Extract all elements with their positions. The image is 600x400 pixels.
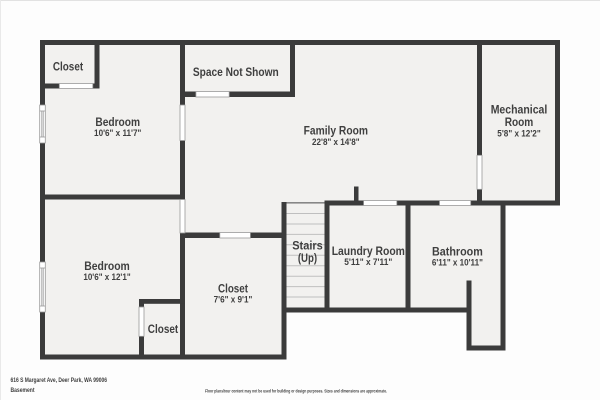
svg-text:(Up): (Up) xyxy=(298,251,317,265)
svg-text:5'11" x 7'11": 5'11" x 7'11" xyxy=(344,257,392,268)
svg-text:7'6" x 9'1": 7'6" x 9'1" xyxy=(214,295,253,306)
svg-text:Floor plans/tour content may n: Floor plans/tour content may not be used… xyxy=(205,388,387,393)
svg-text:Bedroom: Bedroom xyxy=(95,115,140,129)
svg-text:22'8" x 14'8": 22'8" x 14'8" xyxy=(312,137,360,148)
svg-text:Laundry Room: Laundry Room xyxy=(332,244,405,258)
svg-text:5'8" x 12'2": 5'8" x 12'2" xyxy=(497,128,540,139)
svg-text:Space Not Shown: Space Not Shown xyxy=(193,65,279,79)
svg-text:Closet: Closet xyxy=(218,282,248,296)
svg-text:Basement: Basement xyxy=(11,388,35,394)
svg-text:10'6" x 12'1": 10'6" x 12'1" xyxy=(83,272,130,283)
svg-text:Family Room: Family Room xyxy=(304,124,368,138)
svg-text:Closet: Closet xyxy=(53,60,83,74)
svg-text:Bathroom: Bathroom xyxy=(432,244,483,258)
svg-text:Room: Room xyxy=(505,115,534,129)
svg-text:6'11" x 10'11": 6'11" x 10'11" xyxy=(432,257,483,268)
svg-text:Closet: Closet xyxy=(148,322,178,336)
svg-text:10'6" x 11'7": 10'6" x 11'7" xyxy=(94,128,141,139)
svg-text:616 S Margaret Ave, Deer Park,: 616 S Margaret Ave, Deer Park, WA 99006 xyxy=(11,378,108,384)
